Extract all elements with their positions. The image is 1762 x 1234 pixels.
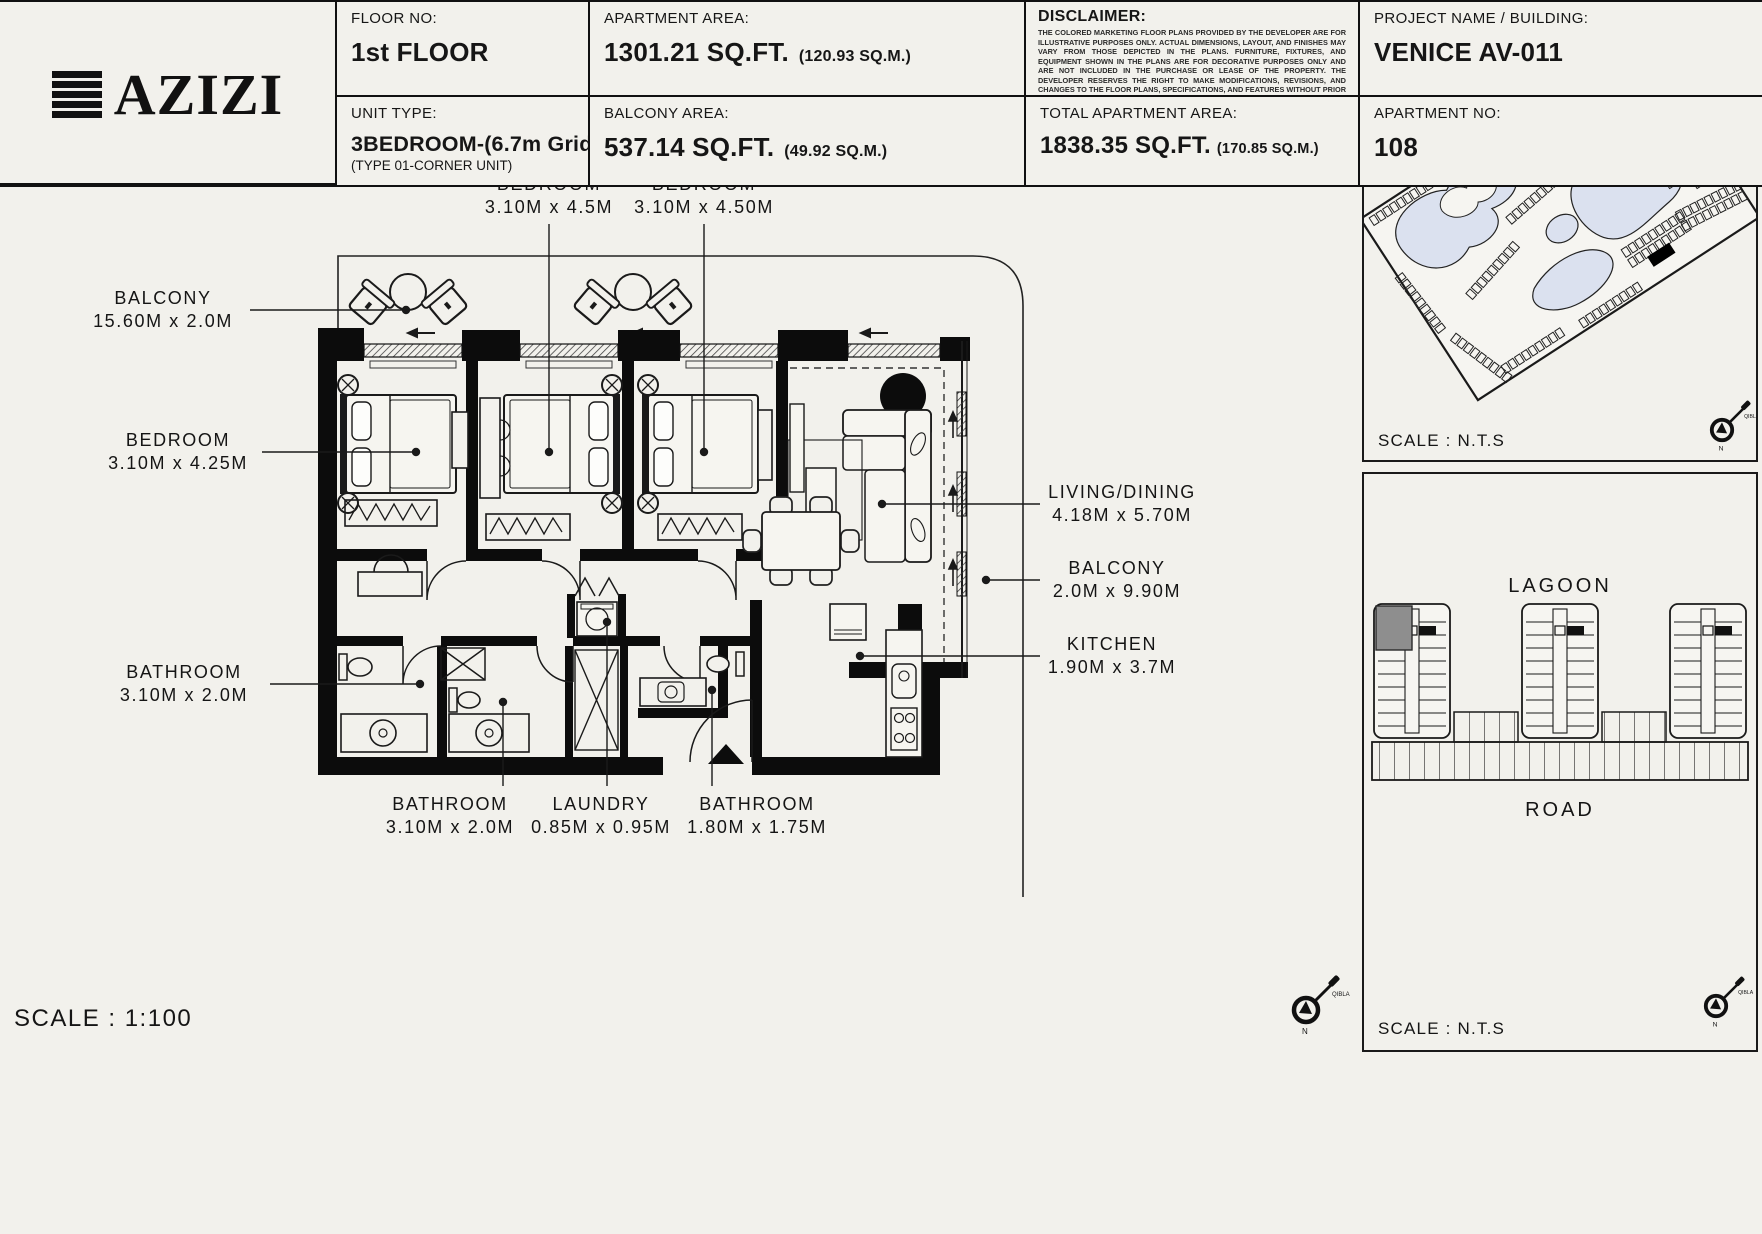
unit-type-value: 3BEDROOM-(6.7m Grid) [351, 132, 574, 157]
console-table [358, 555, 422, 596]
road-label: ROAD [1525, 799, 1595, 821]
project-label: PROJECT NAME / BUILDING: [1374, 10, 1748, 27]
living-dims: 4.18M x 5.70M [1052, 505, 1192, 525]
lagoon-label: LAGOON [1508, 575, 1612, 597]
unit-type-note: (TYPE 01-CORNER UNIT) [351, 158, 574, 173]
disclaimer-text: THE COLORED MARKETING FLOOR PLANS PROVID… [1038, 28, 1346, 97]
bathroom-b [449, 688, 529, 752]
dining-set [743, 497, 859, 585]
laundry-label: LAUNDRY [553, 794, 650, 814]
bed-1 [338, 375, 468, 513]
key-plan: LAGOON ROAD SCALE : N.T.S [1364, 474, 1756, 1046]
key-plan-buildings [1372, 604, 1748, 780]
project-value: VENICE AV-011 [1374, 37, 1748, 68]
disclaimer-label: DISCLAIMER: [1038, 8, 1346, 26]
bathroom-b1-label: BATHROOM [392, 794, 507, 814]
tv-console [790, 404, 804, 492]
floor-no-label: FLOOR NO: [351, 10, 574, 27]
floor-no-cell: FLOOR NO: 1st FLOOR [337, 2, 590, 97]
bathroom-b1-dims: 3.10M x 2.0M [386, 817, 514, 837]
total-area-cell: TOTAL APARTMENT AREA: 1838.35 SQ.FT.(170… [1026, 97, 1360, 185]
site-map-compass-icon [1712, 400, 1756, 452]
entry-arrow [708, 744, 744, 764]
living-label: LIVING/DINING [1048, 482, 1196, 502]
azizi-bars-icon [52, 69, 104, 121]
floor-plan-sheet: { "plan": { "scale": "SCALE : 1:100", "b… [0, 0, 1762, 1234]
total-area-metric: (170.85 SQ.M.) [1217, 141, 1319, 157]
title-block: AZIZI FLOOR NO: 1st FLOOR APARTMENT AREA… [0, 0, 1762, 187]
bed-2 [480, 375, 622, 513]
bedroom-left-dims: 3.10M x 4.25M [108, 453, 248, 473]
site-map-scale-label: SCALE : N.T.S [1378, 431, 1505, 450]
kitchen-label: KITCHEN [1067, 634, 1157, 654]
balcony-furniture-set-1 [345, 274, 471, 328]
unit-type-label: UNIT TYPE: [351, 105, 574, 122]
bathroom-left-label: BATHROOM [126, 662, 241, 682]
balcony-right-dims: 2.0M x 9.90M [1053, 581, 1181, 601]
podium-band [1372, 742, 1748, 780]
balcony-area-metric: (49.92 SQ.M.) [784, 143, 887, 160]
apartment-no-value: 108 [1374, 132, 1748, 163]
project-cell: PROJECT NAME / BUILDING: VENICE AV-011 [1360, 2, 1762, 97]
key-plan-scale-label: SCALE : N.T.S [1378, 1019, 1505, 1038]
apartment-area-cell: APARTMENT AREA: 1301.21 SQ.FT.(120.93 SQ… [590, 2, 1026, 97]
bed-3 [638, 375, 772, 513]
apartment-area-metric: (120.93 SQ.M.) [799, 48, 911, 65]
balcony-top-dims: 15.60M x 2.0M [93, 311, 233, 331]
shower [575, 650, 618, 750]
laundry-closet [575, 578, 619, 636]
bedroom-top2-dims: 3.10M x 4.50M [634, 197, 774, 217]
bathroom-c [640, 652, 744, 706]
key-plan-panel: LAGOON ROAD SCALE : N.T.S [1362, 472, 1758, 1052]
shaft-box [441, 648, 485, 680]
kitchen-counter [830, 604, 922, 757]
bathroom-left-dims: 3.10M x 2.0M [120, 685, 248, 705]
apartment-area-label: APARTMENT AREA: [604, 10, 1010, 27]
plan-compass-icon [1294, 975, 1350, 1036]
floor-no-value: 1st FLOOR [351, 37, 574, 68]
balcony-furniture-set-2 [570, 274, 696, 328]
unit-type-cell: UNIT TYPE: 3BEDROOM-(6.7m Grid) (TYPE 01… [337, 97, 590, 185]
closets [345, 500, 742, 540]
balcony-area-label: BALCONY AREA: [604, 105, 1010, 122]
bedroom-left-label: BEDROOM [126, 430, 230, 450]
brand-logo-text: AZIZI [114, 61, 283, 128]
apartment-area-value: 1301.21 SQ.FT. [604, 37, 789, 67]
bathroom-b2-label: BATHROOM [699, 794, 814, 814]
brand-cell: AZIZI [0, 2, 337, 185]
bathroom-a [339, 654, 427, 752]
balcony-top-label: BALCONY [114, 288, 211, 308]
total-area-value: 1838.35 SQ.FT. [1040, 132, 1211, 159]
kitchen-dims: 1.90M x 3.7M [1048, 657, 1176, 677]
key-plan-compass-icon [1706, 976, 1754, 1028]
total-area-label: TOTAL APARTMENT AREA: [1040, 105, 1344, 122]
balcony-area-value: 537.14 SQ.FT. [604, 132, 774, 162]
disclaimer-cell: DISCLAIMER: THE COLORED MARKETING FLOOR … [1026, 2, 1360, 97]
balcony-area-cell: BALCONY AREA: 537.14 SQ.FT.(49.92 SQ.M.) [590, 97, 1026, 185]
balcony-right-label: BALCONY [1068, 558, 1165, 578]
plan-scale-label: SCALE : 1:100 [14, 1005, 192, 1032]
bathroom-b2-dims: 1.80M x 1.75M [687, 817, 827, 837]
bedroom-top1-dims: 3.10M x 4.5M [485, 197, 613, 217]
laundry-dims: 0.85M x 0.95M [531, 817, 671, 837]
apartment-no-label: APARTMENT NO: [1374, 105, 1748, 122]
apartment-no-cell: APARTMENT NO: 108 [1360, 97, 1762, 185]
highlighted-unit [1376, 606, 1412, 650]
